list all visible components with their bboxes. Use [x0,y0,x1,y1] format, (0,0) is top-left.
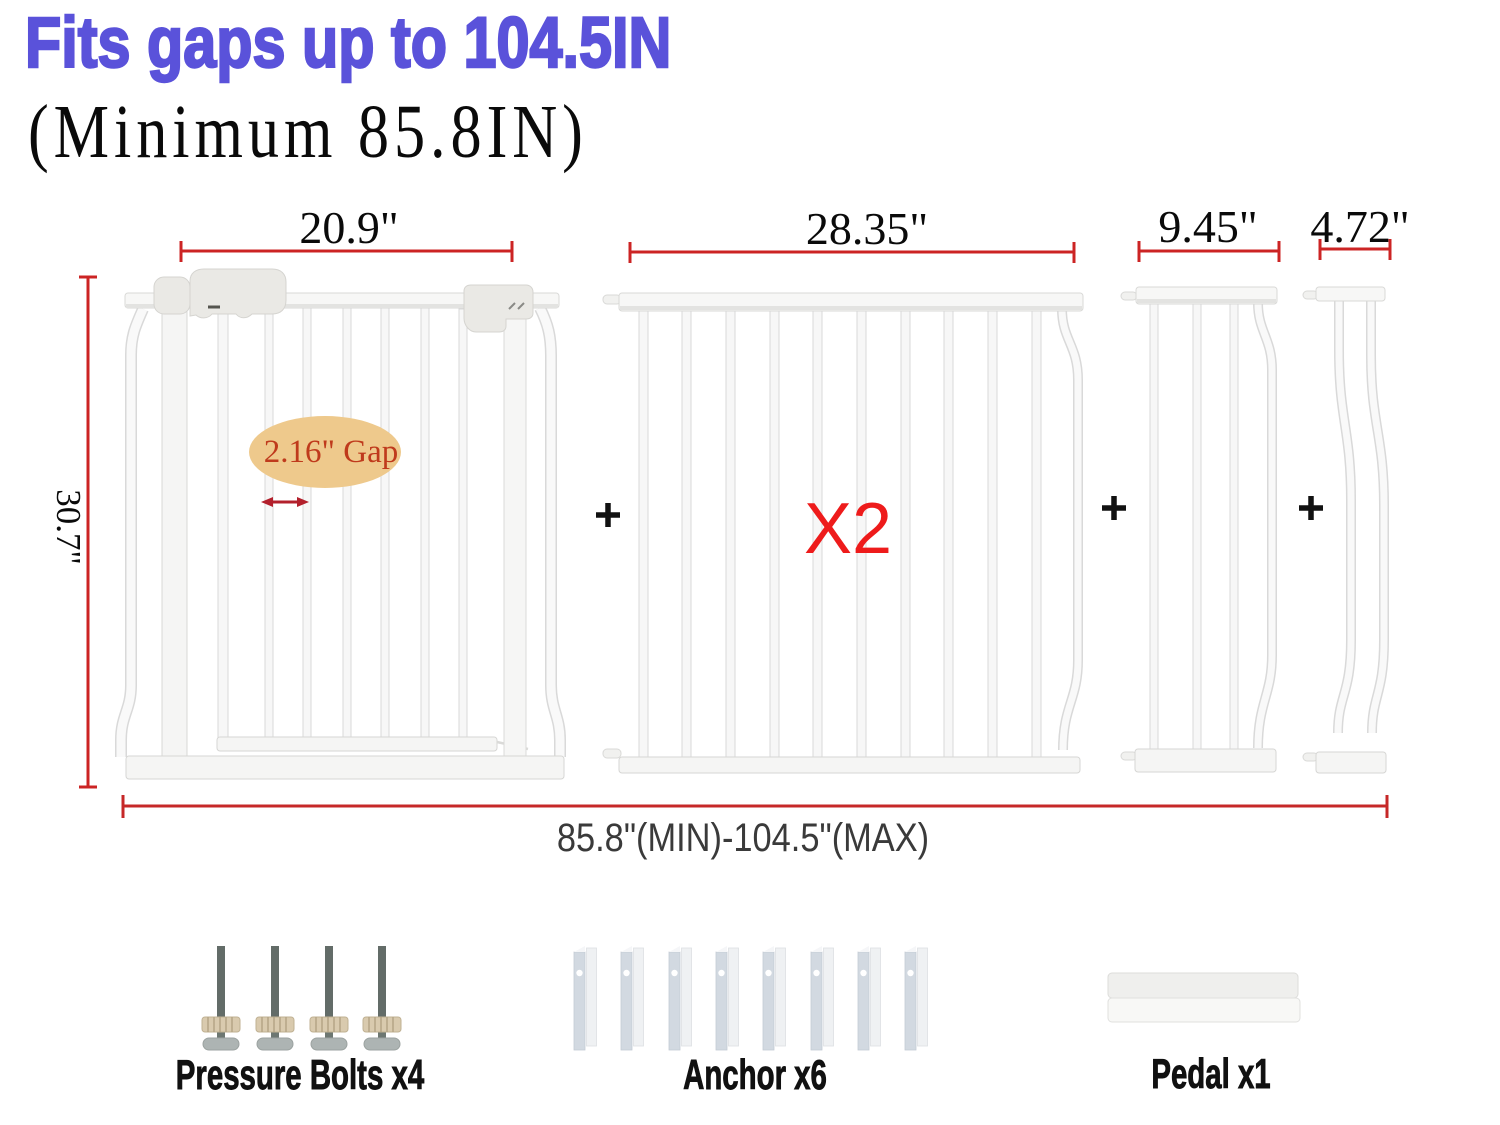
svg-text:85.8"(MIN)-104.5"(MAX): 85.8"(MIN)-104.5"(MAX) [557,815,929,860]
svg-text:Pressure Bolts x4: Pressure Bolts x4 [176,1051,424,1099]
svg-text:4.72": 4.72" [1310,201,1409,252]
svg-text:30.7": 30.7" [49,489,88,565]
svg-text:X2: X2 [804,489,892,569]
svg-text:Anchor x6: Anchor x6 [683,1051,827,1099]
svg-text:28.35": 28.35" [806,203,928,254]
svg-text:Pedal x1: Pedal x1 [1151,1050,1270,1098]
svg-text:9.45": 9.45" [1158,201,1257,252]
svg-text:20.9": 20.9" [299,202,398,253]
svg-text:2.16" Gap: 2.16" Gap [264,434,398,470]
svg-text:(Minimum 85.8IN): (Minimum 85.8IN) [28,90,588,174]
svg-text:Fits gaps up to 104.5IN: Fits gaps up to 104.5IN [25,3,671,82]
